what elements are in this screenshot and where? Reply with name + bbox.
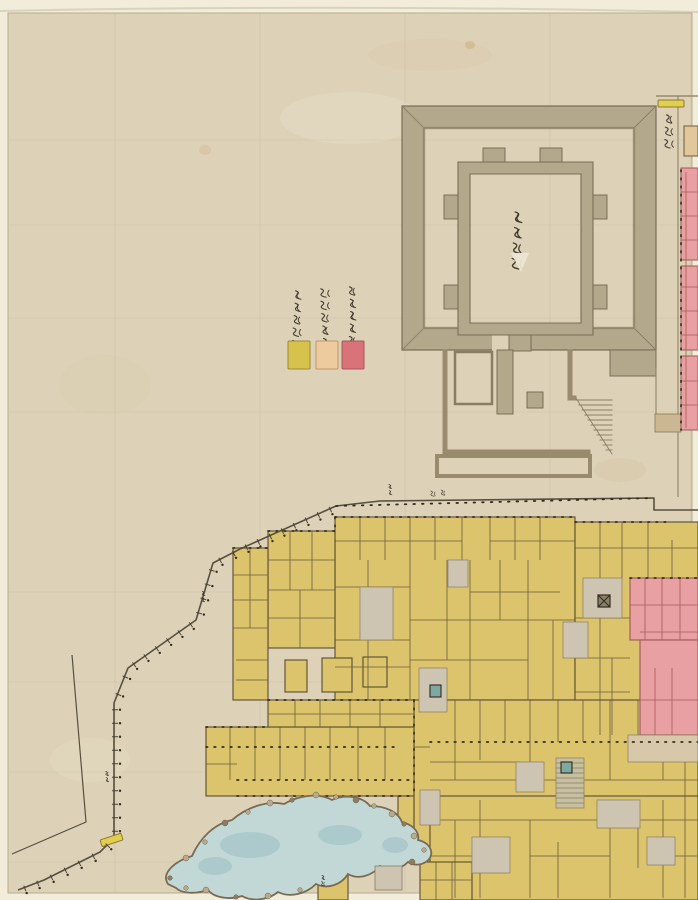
wall-band	[655, 414, 681, 432]
well-teal	[430, 685, 441, 697]
courtyard-band	[628, 735, 698, 762]
gate-marker	[658, 100, 684, 107]
guardhouse-building	[684, 126, 698, 156]
keep-wall-corner-extension	[610, 350, 656, 376]
nagaya-row	[681, 168, 698, 430]
castle-map-scan: 御天守台 武具門	[0, 0, 698, 900]
legend-chip-red	[342, 341, 364, 369]
legend-chip-peach	[316, 341, 338, 369]
pond-islet	[375, 866, 402, 890]
ooku-pink-block	[630, 578, 698, 735]
legend-chip-yellow	[288, 341, 310, 369]
map-canvas: 御天守台 武具門	[0, 0, 698, 900]
well-teal	[561, 762, 572, 773]
